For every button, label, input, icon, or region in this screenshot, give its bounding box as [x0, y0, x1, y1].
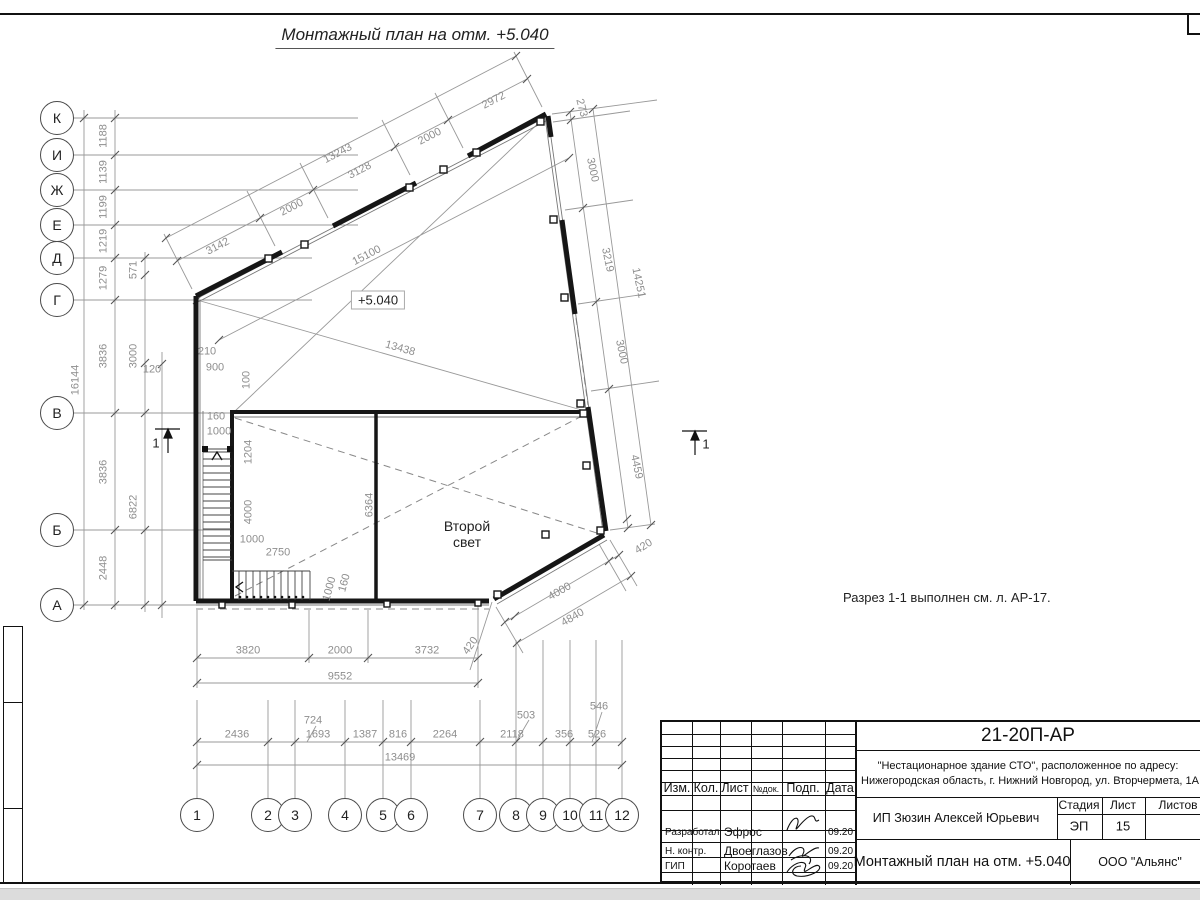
- row-date: 09.20: [828, 827, 853, 838]
- client-name: ИП Зюзин Алексей Юрьевич: [873, 811, 1040, 825]
- col-header-podp: Подп.: [786, 781, 819, 795]
- dimension-label: 2000: [279, 197, 306, 218]
- drawing-name: Монтажный план на отм. +5.040: [854, 854, 1071, 870]
- sheet-number: 15: [1116, 819, 1130, 834]
- title-block-rule: [855, 750, 1200, 751]
- signature-marks: [783, 808, 825, 883]
- axis-number-bubble: 6: [394, 798, 428, 832]
- room-label: Второй свет: [436, 518, 498, 550]
- dimension-label: 3836: [99, 460, 110, 484]
- dimension-label: 2750: [266, 548, 290, 559]
- title-block-rule: [1145, 797, 1146, 839]
- axis-letter-bubble: А: [40, 588, 74, 622]
- dimension-label: 1387: [353, 730, 377, 741]
- dimension-label: 420: [633, 537, 654, 556]
- project-name-line2: Нижегородская область, г. Нижний Новгоро…: [861, 775, 1199, 787]
- dimension-label: 503: [517, 711, 535, 722]
- title-block-rule: [1102, 797, 1103, 839]
- doc-number: 21-20П-АР: [981, 725, 1075, 747]
- sheet-label: Лист: [1110, 798, 1136, 812]
- axis-letter-bubble: Д: [40, 241, 74, 275]
- dimension-label: 3820: [236, 646, 260, 657]
- dimension-label: 4840: [560, 607, 587, 629]
- axis-letter-bubble: И: [40, 138, 74, 172]
- dimension-label: 546: [590, 702, 608, 713]
- stage-label: Стадия: [1059, 798, 1100, 812]
- dimension-label: 13243: [322, 142, 354, 166]
- frame-corner-box: [1187, 14, 1200, 35]
- dimension-label: 160: [337, 573, 352, 594]
- stage-value: ЭП: [1070, 819, 1089, 834]
- axis-number-bubble: 4: [328, 798, 362, 832]
- dimension-label: 3732: [415, 646, 439, 657]
- dimension-label: 3000: [613, 339, 629, 365]
- title-block-rule: [662, 810, 855, 811]
- title-block-rule: [662, 758, 855, 759]
- dimension-label: 100: [242, 371, 253, 389]
- frame-left-margin-table: [3, 626, 23, 883]
- dimension-label: 120: [143, 365, 161, 376]
- col-header-izm: Изм.: [664, 781, 691, 795]
- dimension-label: 1204: [244, 440, 255, 464]
- col-header-data: Дата: [826, 781, 854, 795]
- dimension-label: 3219: [599, 247, 615, 273]
- elevation-label: +5.040: [351, 291, 405, 310]
- dimension-label: 2972: [481, 90, 508, 111]
- dimension-label: 13438: [384, 339, 416, 358]
- axis-letter-bubble: Е: [40, 208, 74, 242]
- title-block-rule: [662, 734, 855, 735]
- dimension-label: 3000: [129, 344, 140, 368]
- row-date: 09.20: [828, 861, 853, 872]
- dimension-label: 526: [588, 730, 606, 741]
- title-block-rule: [662, 795, 855, 796]
- dimension-label: 2436: [225, 730, 249, 741]
- col-header-ndok: №док.: [753, 784, 779, 794]
- title-block-rule: [662, 770, 855, 771]
- col-header-kol: Кол.: [694, 781, 719, 795]
- title-block-rule: [855, 797, 1200, 798]
- section-mark-label: 1: [152, 436, 159, 451]
- drawing-sheet: Монтажный план на отм. +5.040 К И Ж Е Д …: [0, 0, 1200, 900]
- dimension-label: 13469: [385, 753, 416, 764]
- row-role: Н. контр.: [665, 846, 706, 857]
- sheet-title: Монтажный план на отм. +5.040: [275, 25, 554, 49]
- dimension-label: 3142: [205, 236, 232, 257]
- title-block: 21-20П-АР "Нестационарное здание СТО", р…: [660, 720, 1200, 883]
- dimension-label: 210: [198, 347, 216, 358]
- title-block-rule: [855, 839, 1200, 840]
- axis-number-bubble: 7: [463, 798, 497, 832]
- axis-letter-bubble: Ж: [40, 173, 74, 207]
- sheets-label: Листов: [1159, 798, 1198, 812]
- dimension-label: 4000: [547, 581, 574, 603]
- dimension-label: 2000: [328, 646, 352, 657]
- row-role: ГИП: [665, 861, 685, 872]
- dimension-label: 2118: [500, 730, 524, 741]
- dimension-label: 420: [461, 635, 481, 656]
- row-name: Двоеглазов: [724, 844, 788, 858]
- frame-top-line: [0, 13, 1200, 15]
- axis-number-bubble: 12: [605, 798, 639, 832]
- row-date: 09.20: [828, 846, 853, 857]
- title-block-rule: [1057, 814, 1200, 815]
- axis-letter-bubble: К: [40, 101, 74, 135]
- dimension-label: 571: [129, 261, 140, 279]
- axis-number-bubble: 3: [278, 798, 312, 832]
- dimension-label: 6364: [365, 493, 376, 517]
- dimension-label: 2000: [417, 126, 444, 147]
- dimension-label: 3128: [347, 160, 374, 181]
- row-name: Коротаев: [724, 859, 776, 873]
- dimension-label: 1219: [99, 229, 110, 253]
- dimension-label: 16144: [71, 365, 82, 396]
- dimension-label: 15100: [351, 244, 383, 268]
- section-mark-label: 1: [702, 437, 709, 452]
- dimension-label: 1188: [99, 124, 110, 148]
- axis-letter-bubble: Г: [40, 283, 74, 317]
- dimension-label: 900: [206, 363, 224, 374]
- axis-letter-bubble: Б: [40, 513, 74, 547]
- project-name-line1: "Нестационарное здание СТО", расположенн…: [878, 760, 1179, 772]
- sheet-edge-shadow: [0, 888, 1200, 900]
- dimension-label: 1199: [99, 195, 110, 219]
- dimension-label: 3000: [584, 157, 600, 183]
- dimension-label: 4000: [244, 500, 255, 524]
- dimension-label: 160: [207, 412, 225, 423]
- col-header-list: Лист: [721, 781, 748, 795]
- dimension-label: 724: [304, 716, 322, 727]
- axis-letter-bubble: В: [40, 396, 74, 430]
- company-name: ООО "Альянс": [1098, 855, 1182, 869]
- dimension-label: 3836: [99, 344, 110, 368]
- dimension-label: 356: [555, 730, 573, 741]
- dimension-label: 1139: [99, 160, 110, 184]
- axis-number-bubble: 1: [180, 798, 214, 832]
- title-block-rule: [662, 842, 855, 843]
- row-name: Эфрос: [724, 825, 762, 839]
- title-block-rule: [662, 746, 855, 747]
- dimension-label: 1000: [240, 535, 264, 546]
- dimension-label: 1279: [99, 266, 110, 290]
- dimension-label: 273: [573, 98, 588, 119]
- dimension-label: 2448: [99, 556, 110, 580]
- dimension-label: 816: [389, 730, 407, 741]
- section-note: Разрез 1-1 выполнен см. л. АР-17.: [843, 590, 1051, 605]
- dimension-label: 4459: [628, 454, 644, 480]
- dimension-label: 2264: [433, 730, 457, 741]
- dimension-label: 9552: [328, 672, 352, 683]
- dimension-label: 6822: [129, 495, 140, 519]
- dimension-label: 1693: [306, 730, 330, 741]
- row-role: Разработал: [665, 827, 719, 838]
- dimension-label: 1000: [207, 427, 231, 438]
- dimension-label: 14251: [629, 267, 646, 299]
